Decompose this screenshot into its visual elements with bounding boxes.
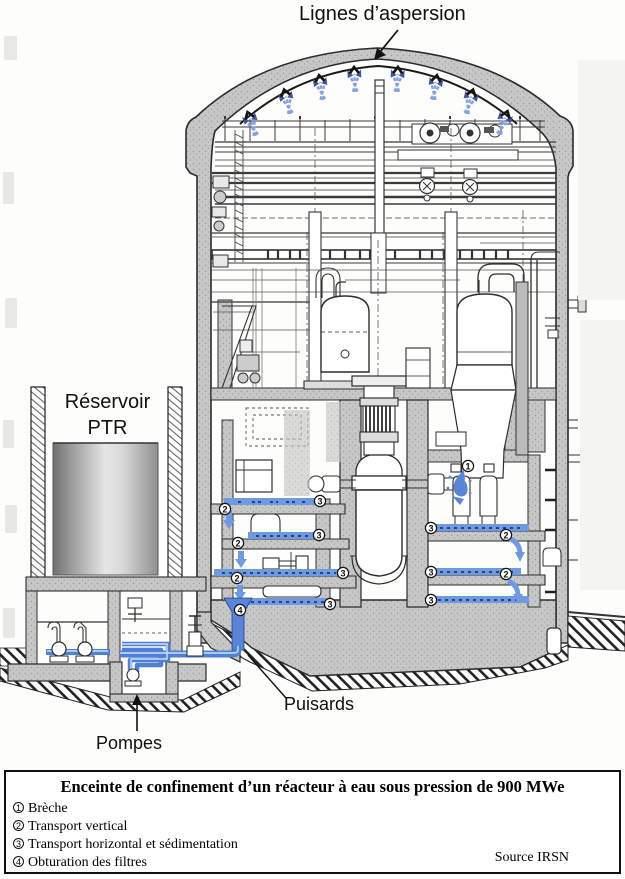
svg-text:2: 2 (222, 505, 227, 515)
svg-text:3: 3 (428, 524, 433, 534)
svg-text:4: 4 (237, 606, 242, 616)
svg-text:3: 3 (316, 531, 321, 541)
svg-text:3: 3 (340, 569, 345, 579)
svg-text:3: 3 (428, 568, 433, 578)
svg-text:2: 2 (503, 570, 508, 580)
svg-text:3: 3 (317, 497, 322, 507)
svg-text:1: 1 (465, 462, 470, 472)
svg-text:2: 2 (235, 539, 240, 549)
svg-text:3: 3 (327, 600, 332, 610)
svg-text:3: 3 (428, 596, 433, 606)
svg-text:2: 2 (234, 574, 239, 584)
svg-text:2: 2 (503, 531, 508, 541)
